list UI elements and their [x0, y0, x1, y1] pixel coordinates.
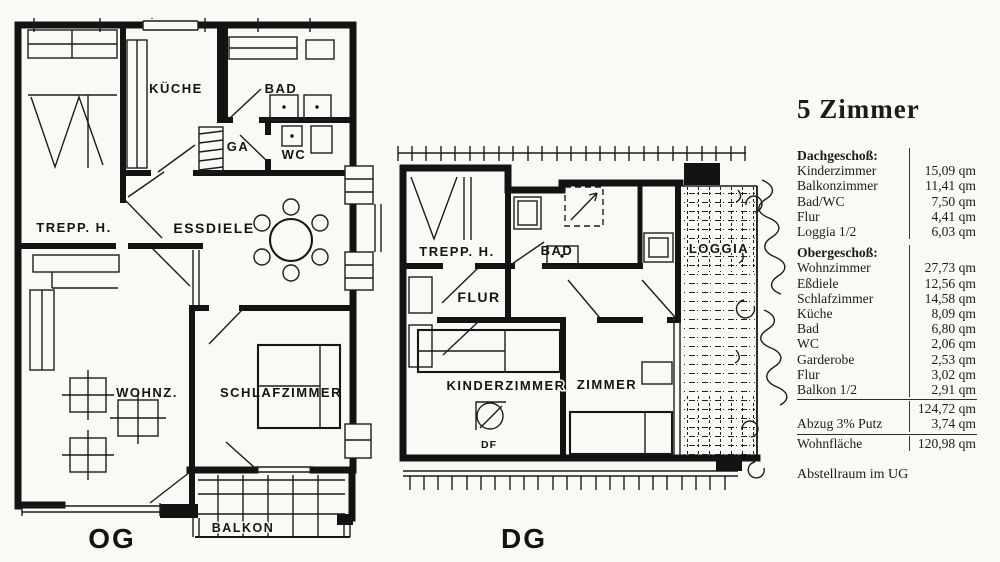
- og-floor-label: OG: [88, 523, 136, 554]
- section-dachgeschoss: Dachgeschoß: Kinderzimmer 15,09 qm Balko…: [797, 148, 977, 239]
- dg-floor-label: DG: [501, 523, 547, 554]
- og-wardrobe-icon: [199, 127, 223, 172]
- footnote: Abstellraum im UG: [797, 467, 977, 483]
- dg-ruler-bottom: [403, 458, 742, 490]
- total-row: Wohnfläche 120,98 qm: [797, 436, 977, 451]
- table-row: Flur 4,41 qm: [797, 209, 977, 224]
- floorplan-drawing: TREPP. H. KÜCHE BAD GA WC ESSDIELE WOHNZ…: [0, 0, 795, 562]
- dg-label-kinderzimmer: KINDERZIMMER: [446, 378, 565, 393]
- og-label-schlafzimmer: SCHLAFZIMMER: [220, 385, 342, 400]
- table-row: Schlafzimmer 14,58 qm: [797, 291, 977, 306]
- table-row: Flur 3,02 qm: [797, 367, 977, 382]
- table-row: Bad/WC 7,50 qm: [797, 194, 977, 209]
- dg-label-flur: FLUR: [457, 289, 500, 305]
- og-label-wohnz: WOHNZ.: [116, 385, 178, 400]
- dg-roof-window-icon: [476, 402, 506, 430]
- og-bath-fixtures: [270, 95, 332, 153]
- dg-label-loggia: LOGGIA: [689, 241, 749, 256]
- dg-plan: TREPP. H. BAD LOGGIA FLUR KINDERZIMMER Z…: [398, 146, 787, 554]
- dg-label-df: DF: [481, 439, 497, 451]
- table-row: Loggia 1/2 6,03 qm: [797, 224, 977, 239]
- table-row: Eßdiele 12,56 qm: [797, 276, 977, 291]
- area-table-panel: 5 Zimmer Dachgeschoß: Kinderzimmer 15,09…: [797, 94, 977, 483]
- og-livingroom-furniture: [30, 255, 166, 480]
- dg-bath-fixtures: [514, 187, 673, 267]
- table-row: Kinderzimmer 15,09 qm: [797, 163, 977, 178]
- section-obergeschoss: Obergeschoß: Wohnzimmer 27,73 qm Eßdiele…: [797, 245, 977, 397]
- table-row: Balkon 1/2 2,91 qm: [797, 382, 977, 397]
- og-label-essdiele: ESSDIELE: [173, 220, 254, 236]
- panel-title: 5 Zimmer: [797, 94, 977, 124]
- og-label-balkon: BALKON: [212, 521, 274, 535]
- og-kitchen-counter: [127, 40, 147, 168]
- table-rule: [797, 399, 977, 400]
- dg-label-bad: BAD: [541, 243, 574, 258]
- og-stairs-icon: [28, 95, 117, 168]
- og-label-kueche: KÜCHE: [149, 81, 203, 96]
- dg-ruler-top: [398, 146, 746, 161]
- og-label-trepp: TREPP. H.: [36, 220, 111, 235]
- og-label-ga: GA: [227, 139, 250, 154]
- og-label-bad: BAD: [265, 81, 298, 96]
- dg-loggia: [682, 186, 757, 458]
- og-balcony: [22, 475, 353, 537]
- og-plan: TREPP. H. KÜCHE BAD GA WC ESSDIELE WOHNZ…: [18, 18, 381, 554]
- table-row: Küche 8,09 qm: [797, 306, 977, 321]
- dg-label-trepp: TREPP. H.: [419, 244, 494, 259]
- dg-flur-cupboards: [409, 277, 432, 367]
- subtotal-row: 124,72 qm: [797, 401, 977, 416]
- table-row: WC 2,06 qm: [797, 336, 977, 351]
- table-row: Bad 6,80 qm: [797, 321, 977, 336]
- floorplan-scan: TREPP. H. KÜCHE BAD GA WC ESSDIELE WOHNZ…: [0, 0, 1000, 562]
- dg-label-zimmer: ZIMMER: [577, 377, 637, 392]
- table-row: Balkonzimmer 11,41 qm: [797, 178, 977, 193]
- og-label-wc: WC: [282, 147, 307, 162]
- section-heading: Obergeschoß:: [797, 245, 977, 260]
- table-row: Wohnzimmer 27,73 qm: [797, 260, 977, 275]
- table-rule: [797, 434, 977, 435]
- dg-stairs-icon: [411, 177, 471, 240]
- dining-table-icon: [254, 199, 328, 281]
- section-heading: Dachgeschoß:: [797, 148, 977, 163]
- deduction-row: Abzug 3% Putz 3,74 qm: [797, 416, 977, 431]
- table-row: Garderobe 2,53 qm: [797, 352, 977, 367]
